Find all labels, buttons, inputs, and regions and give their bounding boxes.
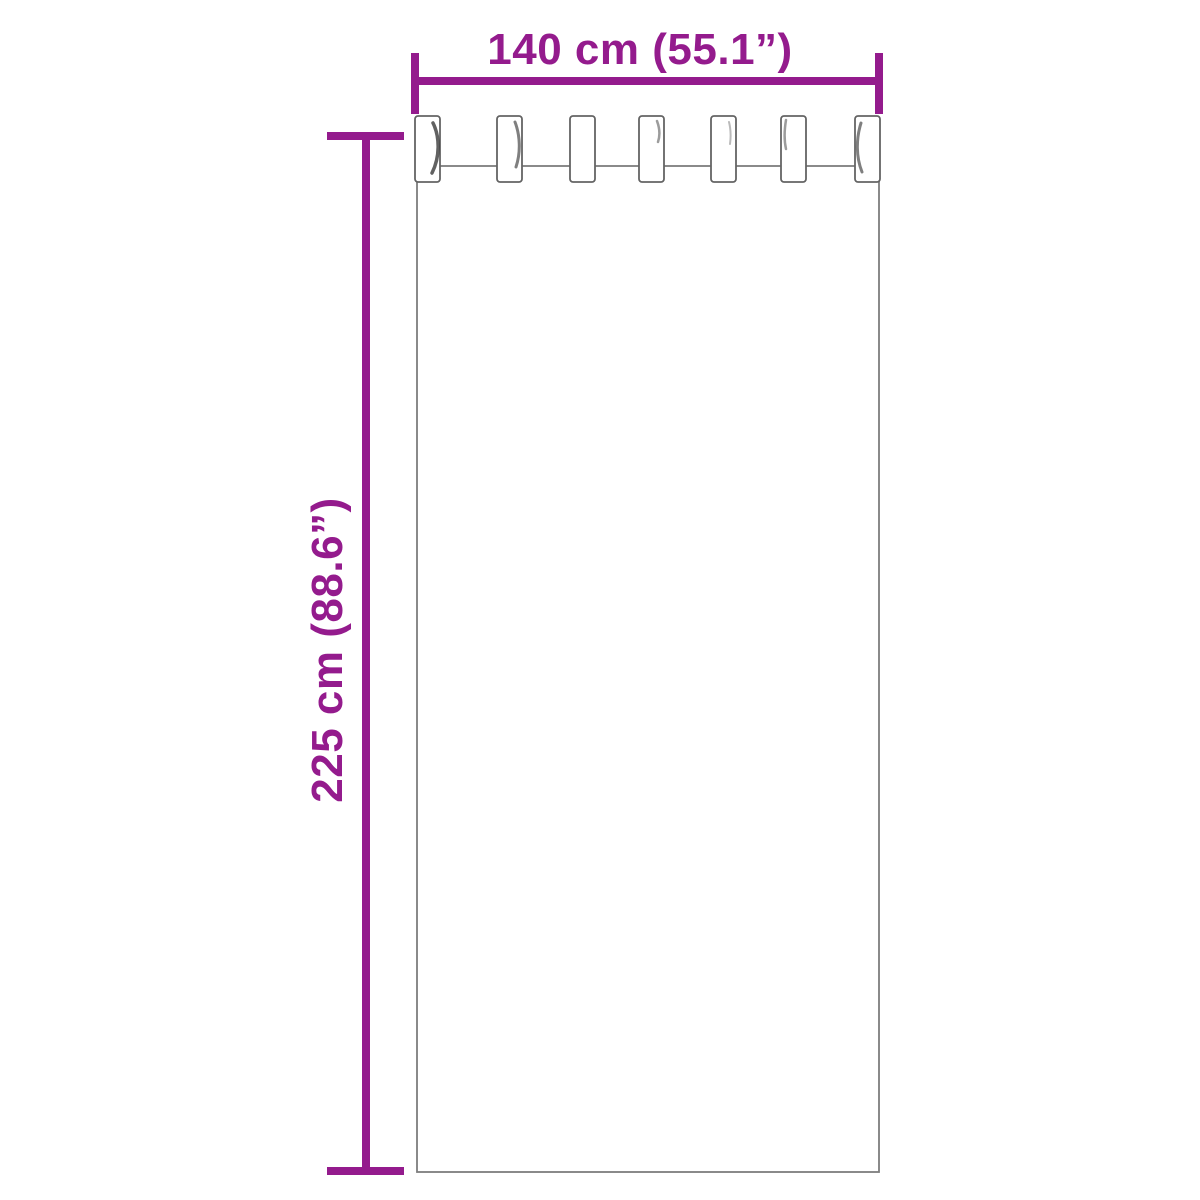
curtain-panel — [417, 166, 879, 1172]
height-dimension-label: 225 cm (88.6”) — [303, 497, 352, 802]
height-dimension: 225 cm (88.6”) — [303, 133, 404, 1171]
width-dimension-label: 140 cm (55.1”) — [487, 25, 792, 74]
curtain-tab — [415, 116, 440, 182]
curtain-tab-fold-shadow — [785, 120, 787, 149]
product-dimension-image: 140 cm (55.1”) 225 cm (88.6”) — [0, 0, 1200, 1200]
curtain — [415, 116, 880, 1172]
width-dimension: 140 cm (55.1”) — [415, 25, 879, 114]
curtain-tab — [570, 116, 595, 182]
curtain-tab — [639, 116, 664, 182]
curtain-tab — [711, 116, 736, 182]
curtain-dimension-diagram: 140 cm (55.1”) 225 cm (88.6”) — [0, 0, 1200, 1200]
